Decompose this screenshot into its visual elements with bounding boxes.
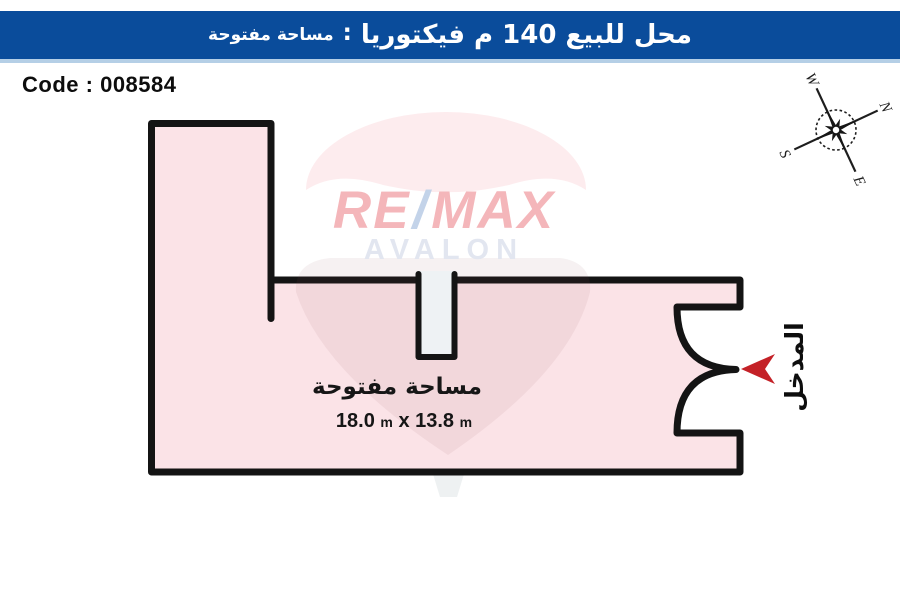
watermark-balloon-basket <box>433 474 464 497</box>
entrance-arrow-icon <box>741 354 775 384</box>
column <box>418 271 455 360</box>
watermark-slash: / <box>411 181 432 240</box>
dim-unit-2: m <box>460 414 472 430</box>
watermark-max: MAX <box>431 181 555 240</box>
entrance-label: المدخل <box>780 320 810 414</box>
compass-rose-icon: N E S W <box>751 47 900 212</box>
dim-unit-1: m <box>380 414 392 430</box>
watermark-remax: RE/MAX <box>294 184 594 237</box>
compass-letter-n: N <box>875 98 895 116</box>
area-label: مساحة مفتوحة <box>272 374 522 400</box>
dim-depth: 13.8 <box>415 410 454 432</box>
watermark-re: RE <box>333 181 411 240</box>
flyer-page: محل للبيع 140 م فيكتوريا : مساحة مفتوحة … <box>0 0 900 600</box>
watermark-avalon: AVALON <box>314 236 574 265</box>
dim-separator: x <box>398 410 409 432</box>
floor-plan-svg: N E S W <box>0 0 900 600</box>
dim-width: 18.0 <box>336 410 375 432</box>
compass-letter-w: W <box>802 71 822 90</box>
compass-letter-s: S <box>776 147 794 161</box>
compass-letter-e: E <box>849 173 868 189</box>
dimensions-label: 18.0 m x 13.8 m <box>279 410 529 433</box>
